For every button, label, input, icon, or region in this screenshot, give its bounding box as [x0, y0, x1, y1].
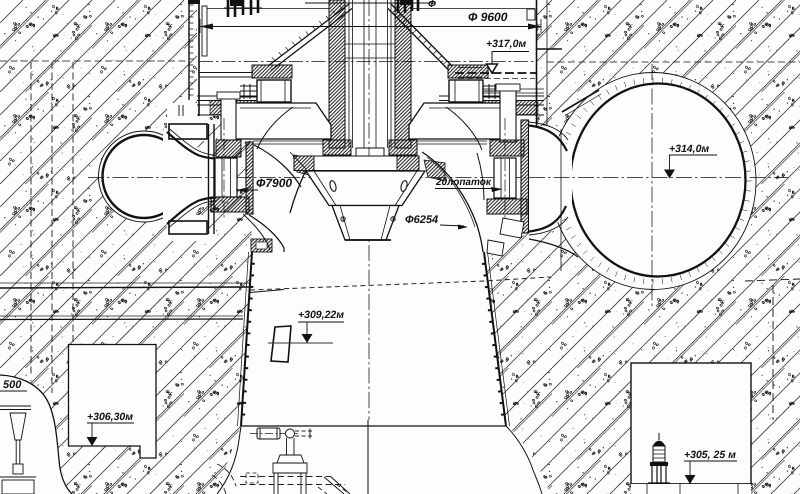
svg-text:Ф6254: Ф6254 [405, 214, 438, 226]
svg-text:Ф 9600: Ф 9600 [468, 10, 508, 24]
svg-text:+309,22м: +309,22м [298, 309, 344, 321]
svg-text:500: 500 [3, 379, 22, 391]
svg-text:+317,0м: +317,0м [486, 38, 526, 50]
svg-text:Ф: Ф [428, 0, 436, 10]
svg-text:Ф7900: Ф7900 [256, 176, 292, 190]
svg-text:+305, 25 м: +305, 25 м [684, 449, 736, 461]
svg-text:+306,30м: +306,30м [87, 411, 133, 423]
svg-text:20лопаток: 20лопаток [435, 177, 492, 188]
svg-text:+314,0м: +314,0м [669, 143, 709, 155]
